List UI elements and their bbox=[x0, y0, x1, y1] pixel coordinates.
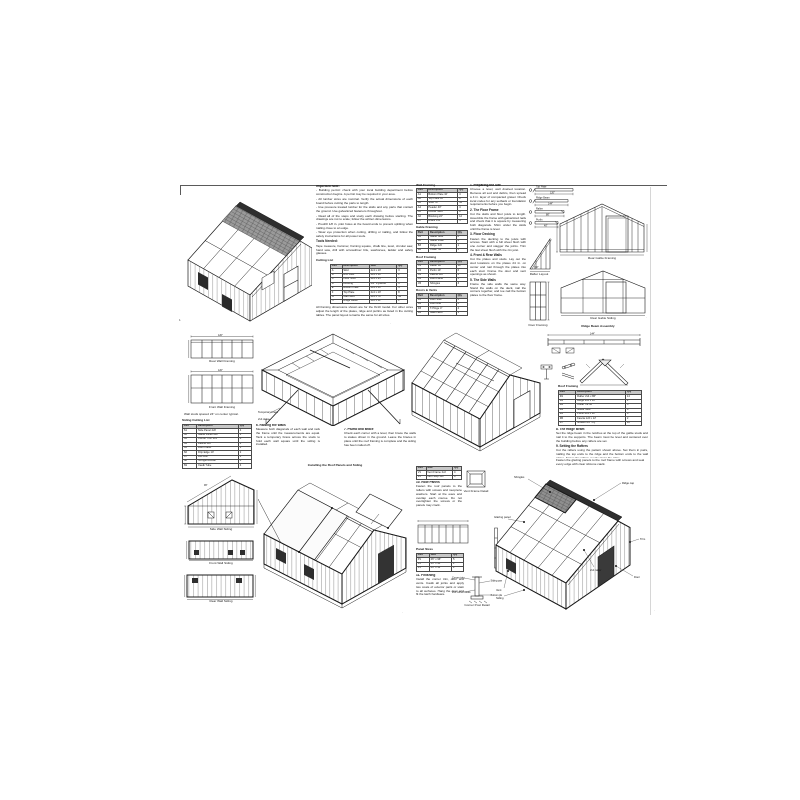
angle-label: 30° bbox=[535, 266, 539, 269]
rear-wall-framing-plan: 120" bbox=[188, 334, 256, 360]
table-cell: 2 bbox=[452, 567, 464, 571]
board-dim: 144" bbox=[548, 202, 553, 205]
table-row: D4Gate Latch1 bbox=[417, 311, 468, 315]
section-paragraph: Frame the side walls the same way. Stand… bbox=[470, 283, 526, 298]
siding-cutlist-table: PartDescriptionQtyS1Side Panel 4x84S2Gab… bbox=[182, 424, 252, 469]
doors-vents-table: PartDescriptionQtyD1Door Stile4D2Door Ra… bbox=[416, 293, 468, 316]
table-cell: 2x6 x 12' bbox=[369, 300, 397, 304]
triangle-caption: Rafter Layout bbox=[518, 273, 560, 277]
table-cell: 4 bbox=[458, 219, 468, 223]
parts-table: PartSizeQtyP126" x 96"5P226" x 44"2P326"… bbox=[416, 553, 464, 572]
section-paragraph: Measure both diagonals of each wall and … bbox=[256, 428, 320, 447]
callout-label: Glazing panel bbox=[494, 515, 511, 519]
elevA-caption: Side Wall Siding bbox=[188, 528, 254, 532]
wall-framing-table: PartDescriptionQtyA1Bottom Plate 10'4A2T… bbox=[416, 188, 468, 224]
section-paragraph: Check each corner with a level, then bra… bbox=[344, 432, 416, 447]
left-wall bbox=[412, 383, 480, 447]
front-wall-framing-plan: 120" bbox=[188, 369, 256, 406]
callout-label: Door bbox=[634, 575, 640, 579]
gable-framing-caption: Rear Gable Framing bbox=[566, 257, 638, 261]
table-title: Roof Framing bbox=[416, 256, 468, 259]
table-cell: H bbox=[331, 300, 343, 304]
parts-table: PartDescriptionQtyB1Gable Stud8B2Gable P… bbox=[416, 230, 468, 253]
text-line: - Use pressure treated lumber for the sk… bbox=[316, 206, 413, 214]
page-mark: · bbox=[646, 316, 647, 319]
table-cell: Vent Stop 1x2 bbox=[426, 475, 453, 479]
table-row: R7Gusset 1/2" Ply10 bbox=[559, 421, 642, 425]
isometric-panel-installation bbox=[258, 472, 414, 612]
isometric-roof-framing bbox=[408, 327, 542, 459]
ridge-board bbox=[444, 340, 510, 378]
table-cell: Gate Latch bbox=[429, 311, 457, 315]
table-cell: 5 bbox=[456, 248, 467, 252]
panel-table: PartSizeQtyP126" x 96"5P226" x 44"2P326"… bbox=[416, 553, 464, 572]
table-cell: 4 bbox=[453, 475, 462, 479]
table-title: Gable Framing bbox=[416, 226, 468, 229]
hardware-parts-detail bbox=[538, 359, 580, 385]
table-title: Doors & Vents bbox=[416, 289, 468, 292]
text-line: - Building permit: check with your local… bbox=[316, 189, 413, 197]
table-cell: Shingles bbox=[429, 282, 457, 286]
plan2-caption: Front Wall Framing bbox=[190, 406, 254, 410]
table-row: HRidge Beam2x6 x 12'1 bbox=[331, 300, 408, 304]
callout-label: Shingles bbox=[514, 475, 525, 479]
ridge-dim: 144" bbox=[590, 332, 595, 335]
table-row: C5Shingles3 bbox=[417, 282, 468, 286]
board-dim: 86" bbox=[546, 213, 550, 216]
gable-framing-table: PartDescriptionQtyB1Gable Stud8B2Gable P… bbox=[416, 230, 468, 253]
cutting-list-title: Cutting List bbox=[316, 259, 396, 262]
sections-8-9: 8. The Ridge Beam Set the ridge beam in … bbox=[556, 428, 648, 458]
rafter-table: PartDescriptionQtyR1Rafter 2x4 x 86"14R2… bbox=[558, 390, 642, 426]
table-cell: B4 bbox=[417, 248, 429, 252]
table-cell: R7 bbox=[559, 421, 576, 425]
parts-table: PartDescriptionQtyA1Bottom Plate 10'4A2T… bbox=[416, 188, 468, 224]
table-row: V2Vent Stop 1x24 bbox=[417, 475, 462, 479]
table-row: B4Collar Tie5 bbox=[417, 248, 468, 252]
isometric-wall-framing: Temporary brace 2x4 stake bbox=[258, 330, 408, 426]
gable-wall bbox=[480, 375, 540, 447]
table-cell: V2 bbox=[417, 475, 427, 479]
table-row: A7Brace 1x44 bbox=[417, 219, 468, 223]
important-notes: Important Note: - Building permit: check… bbox=[316, 185, 413, 264]
door-framing-detail bbox=[526, 280, 550, 324]
table-row: P326" x 12"2 bbox=[417, 567, 464, 571]
isometric-glazing-installation: Ridge cap Shingles Glazing panel 2x4 raf… bbox=[494, 470, 658, 614]
board-label: Top Plate bbox=[536, 185, 547, 188]
materials-tables-column: Wall Framing PartDescriptionQtyA1Bottom … bbox=[416, 184, 468, 326]
board-dim: 40" bbox=[544, 224, 548, 227]
front-wall-siding-elevation bbox=[186, 537, 256, 561]
vent-parts-table: PartSizeQtyV1Vent Frame 2x24V2Vent Stop … bbox=[416, 466, 462, 480]
table-cell: Ridge Beam bbox=[342, 300, 369, 304]
gable-wall bbox=[342, 530, 406, 604]
elevC-caption: Rear Wall Siding bbox=[188, 600, 254, 604]
section-paragraph: Set the ridge beam in the notches at the… bbox=[556, 432, 648, 443]
tools-text: Tape measure, hammer, framing square, ch… bbox=[316, 245, 413, 256]
cutlist-footnote: All framing dimensions shown are for the… bbox=[316, 306, 413, 323]
table-cell: Caulk Tube bbox=[197, 464, 239, 468]
callout-label: 2x4 rafter bbox=[590, 568, 601, 572]
text-line: - Wear eye protection when cutting, dril… bbox=[316, 231, 413, 239]
page-mark: 1 bbox=[179, 319, 181, 322]
center-iso-caption: Installing the Roof Panels and Siding bbox=[288, 464, 382, 468]
callout-label: Vent bbox=[496, 588, 502, 592]
section-10: 10. Roof Panels Fasten the roof panels t… bbox=[416, 481, 462, 517]
table-cell: D4 bbox=[417, 311, 429, 315]
text-line: - Predrill 1/8 in. pilot holes at the bo… bbox=[316, 223, 413, 231]
roof-framing-table: PartDescriptionQtyC1Rafter 86"14C2Purlin… bbox=[416, 260, 468, 287]
post-label: 2x4 corner studs bbox=[452, 591, 471, 594]
far-roof-plane bbox=[444, 333, 522, 375]
board-label: Ridge Beam bbox=[536, 196, 550, 199]
rear-wall-siding-elevation bbox=[184, 570, 256, 600]
text-line: - Read all of the steps and study each d… bbox=[316, 215, 413, 223]
side-wall-framing-elevation bbox=[416, 518, 470, 546]
elevB-caption: Front Wall Siding bbox=[188, 562, 254, 566]
dim-label: 120" bbox=[218, 334, 223, 337]
board-dim: 120" bbox=[550, 191, 555, 194]
table-cell: Collar Tie bbox=[429, 248, 457, 252]
rafter-table-title: Roof Framing bbox=[558, 385, 642, 388]
board-label: Purlin bbox=[536, 218, 543, 221]
parts-table: PartSizeQtyV1Vent Frame 2x24V2Vent Stop … bbox=[416, 466, 462, 480]
table-cell: 4 bbox=[239, 464, 252, 468]
table-cell: C5 bbox=[417, 282, 429, 286]
board-label: Rafter bbox=[536, 207, 543, 210]
plan-note: Wall studs spaced 24" on center typical. bbox=[184, 413, 256, 417]
ridge-caption: Ridge Beam Assembly bbox=[568, 325, 628, 329]
section-paragraph: Choose a level, well drained location. R… bbox=[470, 188, 526, 207]
gable-siding-caption: Rear Gable Siding bbox=[566, 317, 640, 321]
post-label: Corner trim bbox=[452, 577, 465, 580]
table-title: Wall Framing bbox=[416, 184, 468, 187]
parts-table: PartDescriptionQtyD1Door Stile4D2Door Ra… bbox=[416, 293, 468, 316]
vent-detail-caption: Vent Frame Detail bbox=[458, 490, 494, 494]
table-cell: Gusset 1/2" Ply bbox=[576, 421, 626, 425]
gable-siding-elevation bbox=[558, 266, 648, 316]
rafter-layout-triangle: 30° bbox=[527, 234, 553, 272]
callout-label: Siding bbox=[496, 596, 504, 600]
right-iso-caption: Fasten the glazing panels to the roof fr… bbox=[556, 459, 652, 466]
floating-panel bbox=[356, 494, 402, 528]
sheet-border-corner-tick bbox=[180, 185, 181, 195]
siding-cutlist-title: Siding Cutting List bbox=[182, 419, 252, 422]
side-wall-siding-elevation: 96" bbox=[184, 472, 258, 528]
section-paragraph: Fasten the roof panels to the rafters wi… bbox=[416, 485, 462, 508]
section-paragraph: Cut the skids and floor joists to length… bbox=[470, 213, 526, 232]
gable-framing-elevation bbox=[556, 198, 648, 256]
notes-bullets: - Building permit: check with your local… bbox=[316, 189, 413, 239]
table-cell: 1 bbox=[456, 311, 467, 315]
dim-label: 120" bbox=[218, 369, 223, 372]
dim-label: 96" bbox=[204, 484, 208, 487]
rafter-apex-detail bbox=[576, 352, 634, 386]
table-cell: P3 bbox=[417, 567, 430, 571]
stake-label: 2x4 stake bbox=[258, 417, 270, 421]
cutting-list-table: PartDescriptionSizeQtyASkid4x4 x 10'3BRi… bbox=[330, 264, 408, 304]
text-line: - All lumber sizes are nominal. Verify t… bbox=[316, 198, 413, 206]
parts-table: PartDescriptionQtyR1Rafter 2x4 x 86"14R2… bbox=[558, 390, 642, 426]
table-cell: A7 bbox=[417, 219, 428, 223]
parts-table: PartDescriptionQtyS1Side Panel 4x84S2Gab… bbox=[182, 424, 252, 469]
table-row: S9Caulk Tube4 bbox=[183, 464, 252, 468]
table-cell: 10 bbox=[626, 421, 642, 425]
parts-table: PartDescriptionSizeQtyASkid4x4 x 10'3BRi… bbox=[330, 264, 408, 304]
instructions-column: 1. Preparing the Site Choose a level, we… bbox=[470, 184, 526, 326]
section-paragraph: Cut the rafters using the pattern shown … bbox=[556, 449, 648, 458]
brace-label: Temporary brace bbox=[258, 410, 279, 414]
table-cell: Brace 1x4 bbox=[427, 219, 458, 223]
vent-frame-detail bbox=[464, 468, 488, 490]
table-cell: S9 bbox=[183, 464, 197, 468]
panel-table-title: Panel Sizes bbox=[416, 548, 464, 551]
table-cell: 26" x 12" bbox=[429, 567, 451, 571]
parts-table: PartDescriptionQtyC1Rafter 86"14C2Purlin… bbox=[416, 260, 468, 287]
plan-sheet: 1 · · · · bbox=[0, 0, 800, 800]
isometric-finished-greenhouse bbox=[186, 194, 312, 322]
table-cell: 3 bbox=[456, 282, 467, 286]
callout-label: Trim bbox=[640, 537, 646, 541]
plan1-caption: Rear Wall Framing bbox=[190, 360, 254, 364]
section-paragraph: Fasten the decking to the joists with sc… bbox=[470, 238, 526, 253]
callout-label: Ridge cap bbox=[622, 481, 635, 485]
table-cell: 1 bbox=[397, 300, 408, 304]
